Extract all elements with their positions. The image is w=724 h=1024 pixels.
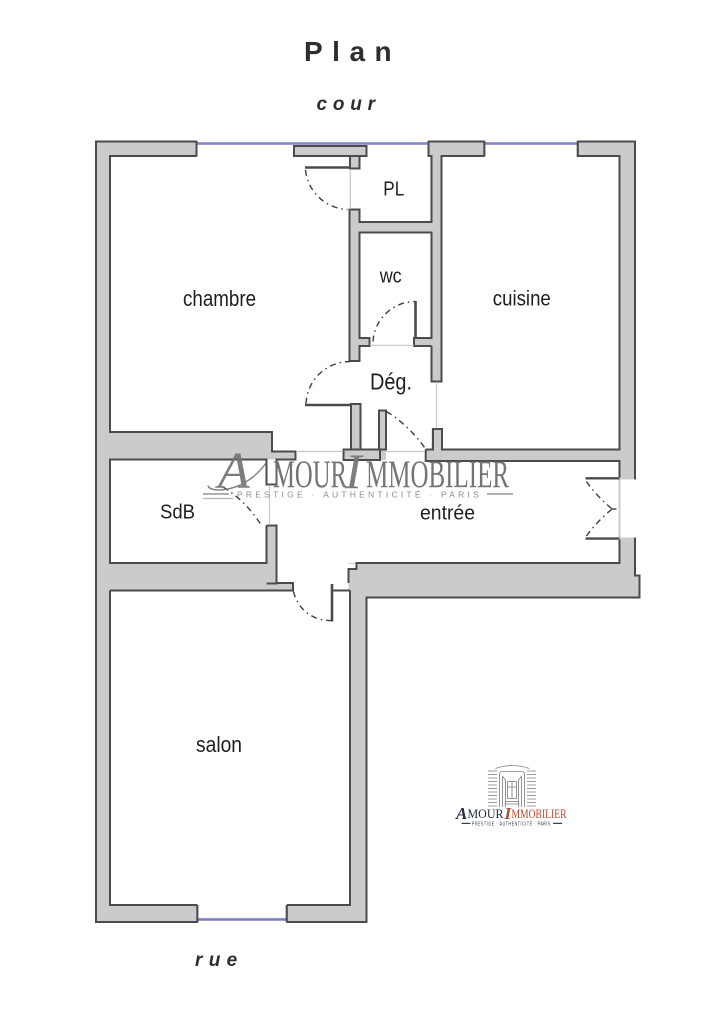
svg-text:entrée: entrée xyxy=(420,502,475,525)
svg-text:SdB: SdB xyxy=(160,502,195,524)
svg-text:cour: cour xyxy=(317,94,381,115)
svg-text:cuisine: cuisine xyxy=(493,287,551,311)
svg-text:chambre: chambre xyxy=(183,286,256,311)
svg-text:MMOBILIER: MMOBILIER xyxy=(512,807,568,821)
svg-text:A: A xyxy=(455,804,467,823)
svg-text:salon: salon xyxy=(196,732,242,757)
svg-text:MOUR: MOUR xyxy=(468,807,505,821)
svg-text:PL: PL xyxy=(383,179,404,201)
svg-text:wc: wc xyxy=(379,265,402,288)
svg-text:Dég.: Dég. xyxy=(370,369,412,395)
svg-text:rue: rue xyxy=(195,950,243,971)
svg-text:Plan: Plan xyxy=(304,36,401,67)
svg-text:PRESTIGE · AUTHENTICITÉ · PARI: PRESTIGE · AUTHENTICITÉ · PARIS xyxy=(237,490,482,500)
svg-text:PRESTIGE · AUTHENTICITÉ · PARI: PRESTIGE · AUTHENTICITÉ · PARIS xyxy=(472,821,551,828)
